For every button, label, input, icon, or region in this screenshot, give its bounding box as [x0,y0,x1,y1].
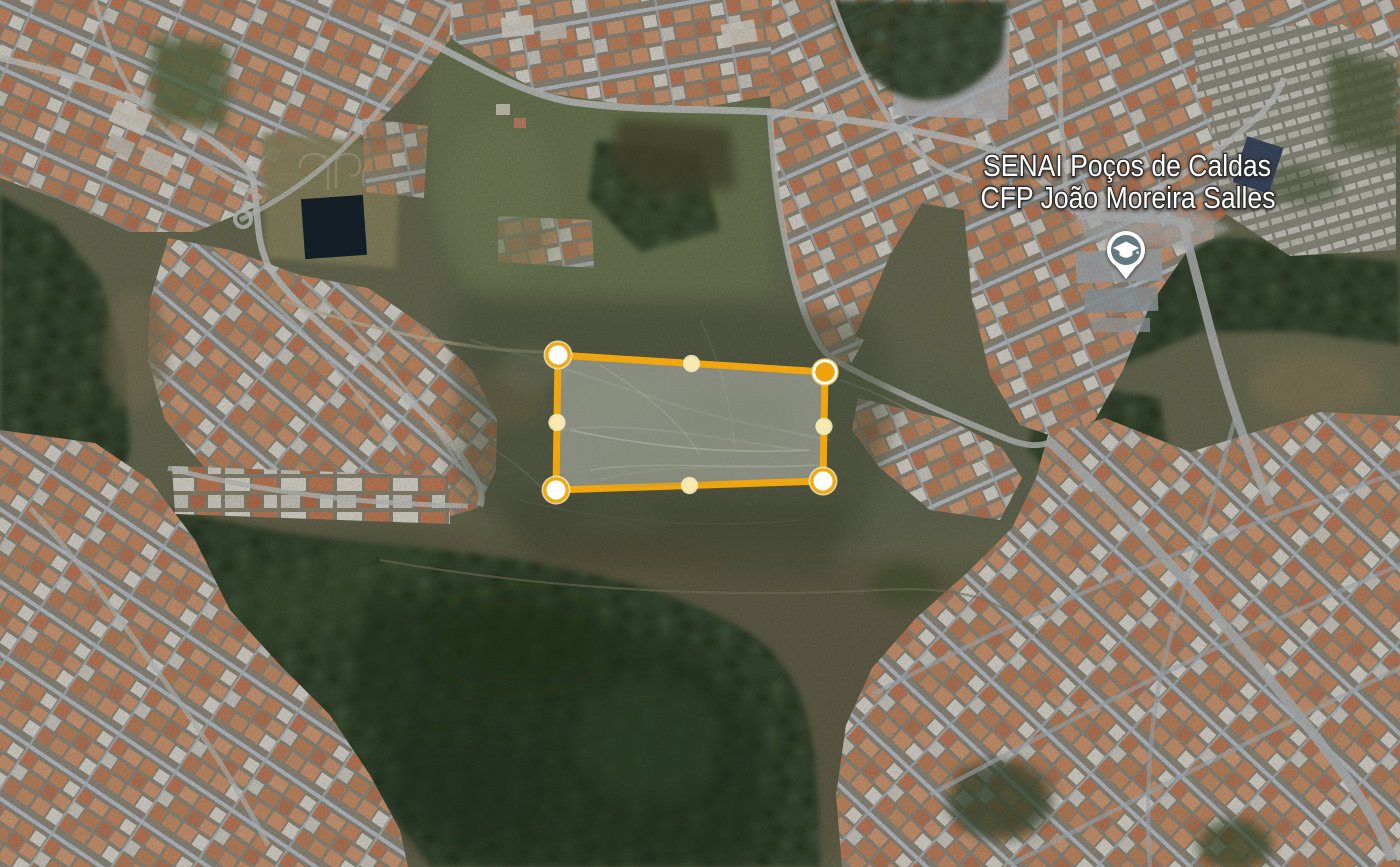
svg-text:SENAI Poços de Caldas: SENAI Poços de Caldas [983,149,1271,183]
svg-text:CFP João Moreira Salles: CFP João Moreira Salles [981,181,1276,215]
